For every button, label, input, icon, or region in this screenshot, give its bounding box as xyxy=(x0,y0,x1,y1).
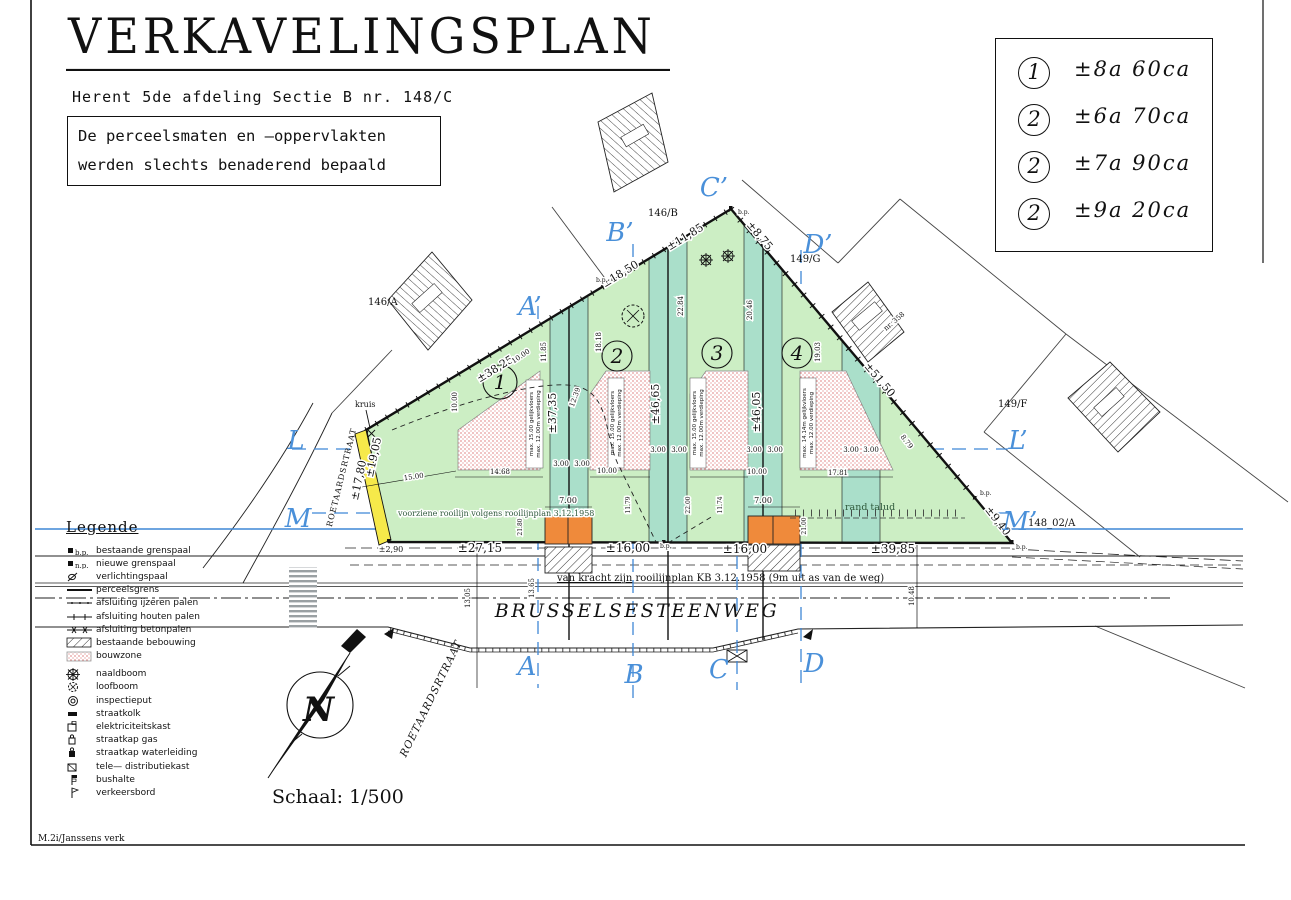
legend-item: tele— distributiekast xyxy=(66,760,306,773)
lot-number: 3 xyxy=(711,341,724,365)
dim: 20.46 xyxy=(746,299,754,320)
zone-text: max. 14.14m gelijkvloers xyxy=(802,388,808,458)
rooilijn-kb-note: van kracht zijn rooilijnplan KB 3.12.195… xyxy=(556,573,884,584)
legend-item: verkeersbord xyxy=(66,786,306,799)
boundary-post-icon: b.p. xyxy=(66,546,96,556)
section-letter: B’ xyxy=(605,218,633,248)
dim: 21.00 xyxy=(801,517,808,534)
section-letter: B xyxy=(623,660,643,690)
lot-area: ±8a 60ca xyxy=(1074,57,1191,81)
dim: 3.00 xyxy=(553,460,569,468)
dim: 3.00 xyxy=(650,446,666,454)
zone-text: max. 12.00m verdieping xyxy=(699,389,705,457)
dim: 3.00 xyxy=(574,460,590,468)
bp-label: b.p. xyxy=(660,543,672,550)
section-letter: L’ xyxy=(1007,426,1027,456)
dim: 7.00 xyxy=(754,496,772,505)
lot-number: 2 xyxy=(610,344,624,368)
conifer-icon xyxy=(66,668,96,681)
dim: 21.80 xyxy=(517,518,524,535)
vert-dim: ±46,65 xyxy=(649,384,662,425)
dim: 22.00 xyxy=(685,496,692,513)
water-cap-icon xyxy=(66,747,96,759)
lot-circle: 2 xyxy=(1018,104,1050,136)
lamp-post-icon xyxy=(66,572,96,582)
lot-area: ±7a 90ca xyxy=(1074,151,1191,175)
dim: 10.00 xyxy=(451,392,459,412)
legend-item: perceelsgrens xyxy=(66,584,306,597)
dim: 11.79 xyxy=(625,496,632,513)
legend-item: bouwzone xyxy=(66,650,306,663)
legend-item: afsluiting betonpalen xyxy=(66,623,306,636)
zone-text: max. 15.00 gelijkvloers xyxy=(692,391,698,455)
legend-item: afsluiting ijzeren palen xyxy=(66,597,306,610)
dim: 10.00 xyxy=(747,468,767,476)
kruis-label: kruis xyxy=(355,400,376,409)
legend-item: straatkap gas xyxy=(66,734,306,747)
new-boundary-post-icon: n.p. xyxy=(66,559,96,569)
iron-fence-icon xyxy=(66,598,96,608)
legend-item: loofboom xyxy=(66,681,306,694)
legend-item: bushalte xyxy=(66,773,306,786)
wood-fence-icon xyxy=(66,612,96,622)
lot-area: ±6a 70ca xyxy=(1074,104,1191,128)
legend: Legende b.p. bestaande grenspaal n.p. ni… xyxy=(66,518,306,800)
vert-dim: ±46,05 xyxy=(750,392,763,433)
rooilijn-note: voorziene rooilijn volgens rooilijnplan … xyxy=(397,509,594,518)
svg-text:n.p.: n.p. xyxy=(75,562,88,569)
legend-item: elektriciteitskast xyxy=(66,720,306,733)
section-letter: M’ xyxy=(1002,507,1038,537)
legend-item: afsluiting houten palen xyxy=(66,610,306,623)
zone-text: max. 12.00m verdieping xyxy=(536,390,542,458)
bottom-dim: ±39,85 xyxy=(871,542,915,556)
bp-label: b.p. xyxy=(980,490,992,497)
parcel-label: 146/B xyxy=(648,208,678,219)
legend-item: naaldboom xyxy=(66,668,306,681)
dim: 11.85 xyxy=(540,342,548,362)
bottom-dim: ±2,90 xyxy=(379,545,404,554)
lot-area-row: 2 ±7a 90ca xyxy=(996,145,1212,192)
page-subtitle: Herent 5de afdeling Sectie B nr. 148/C xyxy=(72,88,453,106)
bottom-dim: ±27,15 xyxy=(458,541,502,555)
dim: 10.00 xyxy=(597,467,617,475)
section-letter: L xyxy=(286,426,304,456)
dim: 3.00 xyxy=(863,446,879,454)
dim: 11.74 xyxy=(717,496,724,513)
page-title: VERKAVELINGSPLAN xyxy=(66,8,670,71)
zone-text: max. 15.00 gelijkvloers xyxy=(529,392,535,456)
zone-text: max. 12.00m verdieping xyxy=(617,389,623,457)
section-letter: A’ xyxy=(516,292,541,322)
lot-number: 4 xyxy=(790,341,804,365)
inspection-pit-icon xyxy=(66,695,96,707)
dim: 10.48 xyxy=(908,586,916,606)
legend-item: straatkolk xyxy=(66,707,306,720)
dim: 19.03 xyxy=(814,342,822,362)
zone-text: max. 12.00 verdieping xyxy=(809,392,815,454)
talud-label: rand talud xyxy=(845,502,895,513)
section-letter: A xyxy=(516,652,537,682)
lot-circle: 1 xyxy=(1018,57,1050,89)
legend-title: Legende xyxy=(66,518,306,536)
bottom-dim: ±16,00 xyxy=(606,541,650,555)
street-name: ROETAARDSRTRAAT xyxy=(397,638,465,760)
build-zone-icon xyxy=(66,651,96,662)
dim: 13.65 xyxy=(528,578,536,598)
vert-dim: ±37,35 xyxy=(546,393,559,434)
dim: 3.00 xyxy=(746,446,762,454)
lot-circle: 2 xyxy=(1018,151,1050,183)
street-drain-icon xyxy=(66,709,96,719)
existing-building-icon xyxy=(66,637,96,648)
dim: 3.00 xyxy=(671,446,687,454)
electricity-cabinet-icon xyxy=(66,721,96,733)
parcel-label: 146/A xyxy=(368,297,398,308)
dim: 22.84 xyxy=(677,295,685,316)
traffic-sign-icon xyxy=(66,787,96,799)
section-letter: D xyxy=(803,649,825,679)
parcel-label: 149/F xyxy=(998,399,1027,410)
street-name: BRUSSELSESTEENWEG xyxy=(494,600,779,622)
svg-text:b.p.: b.p. xyxy=(75,549,88,556)
dim: 7.00 xyxy=(559,496,577,505)
bp-label: b.p. xyxy=(1016,544,1028,551)
concrete-fence-icon xyxy=(66,625,96,635)
lot-area-row: 1 ±8a 60ca xyxy=(996,51,1212,98)
gas-cap-icon xyxy=(66,734,96,746)
dim: 3.00 xyxy=(843,446,859,454)
dim: 17.81 xyxy=(828,469,848,477)
scale-label: Schaal: 1/500 xyxy=(272,786,404,808)
bottom-dim: ±16,00 xyxy=(723,542,767,556)
disclaimer-box: De perceelsmaten en –oppervlakten werden… xyxy=(67,116,441,186)
legend-item: b.p. bestaande grenspaal xyxy=(66,544,306,557)
disclaimer-line2: werden slechts benaderend bepaald xyxy=(78,151,430,180)
dim: 18.18 xyxy=(595,332,603,352)
lot-circle: 2 xyxy=(1018,198,1050,230)
section-letter: C’ xyxy=(700,173,728,203)
lot-area-row: 2 ±6a 70ca xyxy=(996,98,1212,145)
parcel-border-icon xyxy=(66,585,96,595)
lot-area-row: 2 ±9a 20ca xyxy=(996,192,1212,239)
bus-stop-icon xyxy=(66,774,96,786)
legend-item: bestaande bebouwing xyxy=(66,636,306,649)
section-letter: D’ xyxy=(802,230,832,260)
bp-label: b.p. xyxy=(596,277,608,284)
dim: 3.00 xyxy=(767,446,783,454)
deciduous-icon xyxy=(66,681,96,693)
lot-areas-box: 1 ±8a 60ca 2 ±6a 70ca 2 ±7a 90ca 2 ±9a 2… xyxy=(995,38,1213,252)
disclaimer-line1: De perceelsmaten en –oppervlakten xyxy=(78,122,430,151)
section-letter: C xyxy=(709,655,729,685)
legend-item: verlichtingspaal xyxy=(66,570,306,583)
lot-area: ±9a 20ca xyxy=(1074,198,1191,222)
legend-item: inspectieput xyxy=(66,694,306,707)
telecom-cabinet-icon xyxy=(66,761,96,773)
zone-text: max. 15.00 gelijkvloers xyxy=(610,391,616,455)
dim: 13.05 xyxy=(464,588,472,608)
compass-n: N xyxy=(302,690,336,730)
legend-item: straatkap waterleiding xyxy=(66,747,306,760)
drawing-reference: M.2i/Janssens verk xyxy=(38,834,125,844)
legend-item: n.p. nieuwe grenspaal xyxy=(66,557,306,570)
dim: 14.68 xyxy=(490,468,510,476)
bp-label: b.p. xyxy=(738,209,750,216)
